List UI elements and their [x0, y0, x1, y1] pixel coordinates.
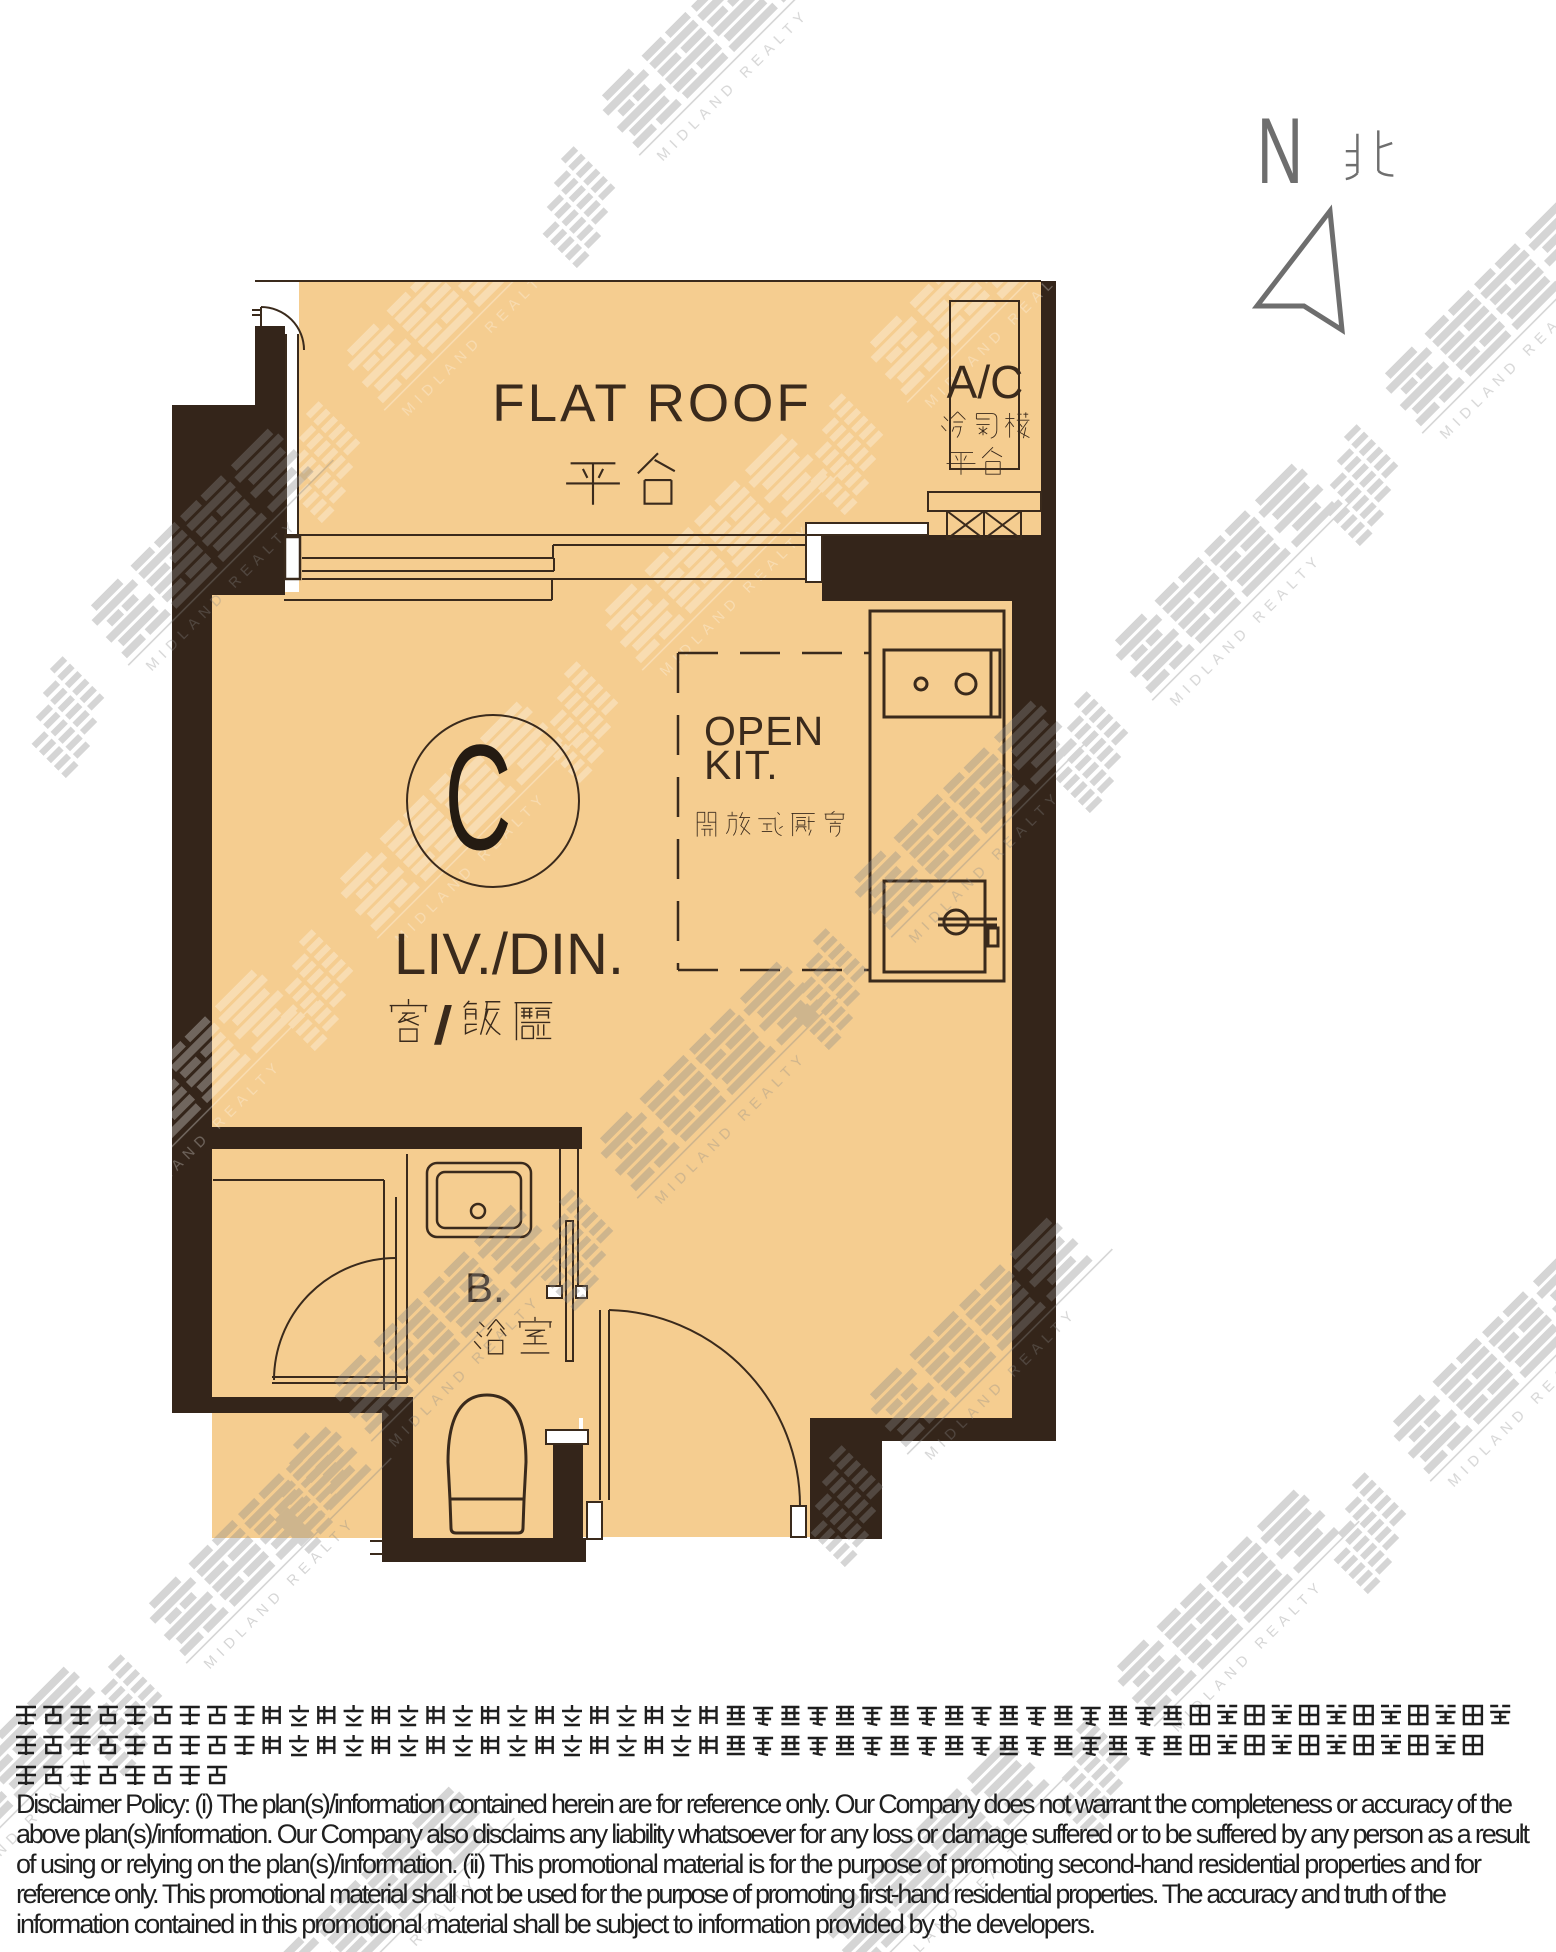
svg-text:C: C [444, 714, 511, 881]
svg-text:KIT.: KIT. [704, 742, 779, 788]
svg-text:FLAT ROOF: FLAT ROOF [492, 374, 812, 433]
svg-text:A/C: A/C [947, 356, 1024, 408]
svg-text:of using or relying on the pla: of using or relying on the plan(s)/infor… [16, 1849, 1482, 1879]
svg-text:LIV./DIN.: LIV./DIN. [394, 922, 624, 987]
svg-text:reference only. This promotion: reference only. This promotional materia… [16, 1879, 1447, 1909]
svg-text:Disclaimer Policy: (i) The pla: Disclaimer Policy: (i) The plan(s)/infor… [16, 1789, 1513, 1819]
svg-text:/: / [436, 998, 450, 1054]
svg-text:information contained in this: information contained in this promotiona… [16, 1909, 1096, 1939]
svg-text:N: N [1257, 99, 1303, 204]
svg-text:above plan(s)/information. Our: above plan(s)/information. Our Company a… [16, 1819, 1530, 1849]
